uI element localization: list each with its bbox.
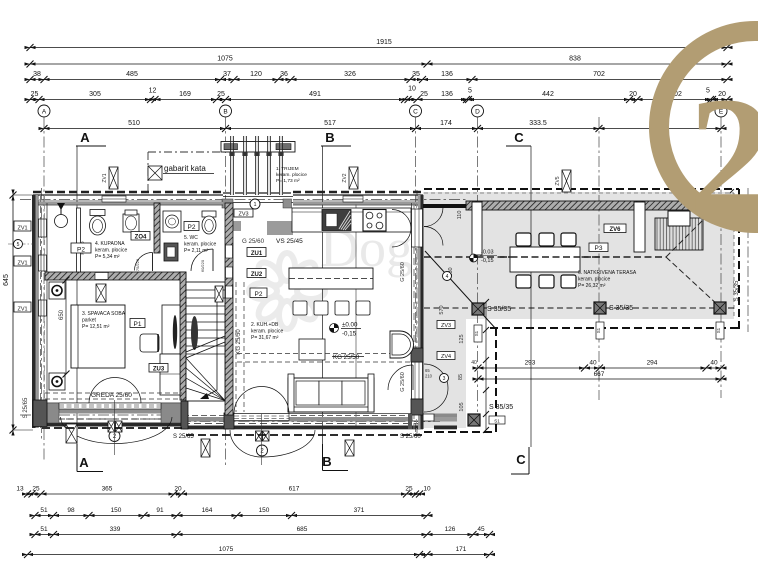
svg-text:G 25/60: G 25/60 [242,238,265,245]
svg-text:parket: parket [82,318,97,324]
svg-text:B: B [322,454,331,469]
svg-text:S 35/35: S 35/35 [734,280,740,301]
svg-text:164: 164 [202,507,213,514]
svg-text:A: A [79,455,89,470]
svg-text:150: 150 [111,507,122,514]
svg-text:P= 1,73 m²: P= 1,73 m² [276,178,300,184]
svg-text:326: 326 [344,71,356,78]
svg-text:110: 110 [457,211,463,220]
svg-text:125: 125 [459,334,465,343]
svg-text:5: 5 [468,88,472,95]
svg-text:293: 293 [525,360,536,367]
svg-text:ZU2: ZU2 [251,272,263,278]
svg-text:4: 4 [446,274,449,280]
svg-text:10: 10 [408,86,416,93]
svg-text:S1: S1 [494,419,500,424]
svg-text:838: 838 [569,56,581,63]
svg-text:305: 305 [89,91,101,98]
svg-text:1075: 1075 [217,56,233,63]
svg-text:60/220: 60/220 [200,259,205,272]
svg-text:171: 171 [456,546,467,553]
svg-text:65: 65 [425,368,430,373]
svg-text:1. TRIJEM: 1. TRIJEM [276,166,299,172]
svg-text:-0.03: -0.03 [481,250,494,256]
svg-text:25: 25 [217,91,225,98]
svg-text:G 25/60: G 25/60 [400,262,406,282]
svg-text:keram. plocice: keram. plocice [276,172,307,178]
svg-text:13: 13 [16,486,24,493]
svg-text:517: 517 [324,120,336,127]
svg-text:P2: P2 [77,246,85,253]
svg-text:491: 491 [309,91,321,98]
svg-text:25: 25 [31,91,39,98]
svg-text:ZV1: ZV1 [102,173,108,182]
svg-text:P= 31,67 m²: P= 31,67 m² [251,335,279,341]
svg-text:gabarit kata: gabarit kata [164,164,206,173]
svg-text:51: 51 [40,507,48,514]
svg-text:126: 126 [445,526,456,533]
svg-text:P= 12,51 m²: P= 12,51 m² [82,324,110,330]
svg-text:S 25/65: S 25/65 [173,434,194,440]
svg-text:645: 645 [3,274,10,286]
svg-text:B: B [325,130,334,145]
svg-text:ZU1: ZU1 [251,251,263,257]
svg-text:25: 25 [32,486,40,493]
svg-text:A: A [42,108,47,115]
svg-text:1: 1 [253,202,256,208]
svg-text:D: D [475,108,480,115]
svg-text:keram. plocice: keram. plocice [184,242,216,248]
svg-text:ZV6: ZV6 [609,227,621,233]
svg-text:C: C [413,108,418,115]
svg-text:485: 485 [126,71,138,78]
svg-text:36: 36 [280,71,288,78]
svg-text:85: 85 [458,374,464,380]
svg-text:P= 26,32 m²: P= 26,32 m² [578,283,606,289]
svg-text:617: 617 [289,486,300,493]
svg-text:ZV2: ZV2 [342,173,348,182]
svg-text:339: 339 [110,526,121,533]
svg-text:±0.00: ±0.00 [342,322,358,329]
svg-text:650: 650 [59,309,65,320]
svg-text:KG 25/50: KG 25/50 [236,329,242,355]
svg-text:3. SPAVACA SOBA: 3. SPAVACA SOBA [82,311,126,317]
svg-text:S 35/35: S 35/35 [487,306,511,313]
svg-text:685: 685 [297,526,308,533]
svg-text:keram. plocice: keram. plocice [578,277,610,283]
svg-text:keram. plocice: keram. plocice [251,329,283,335]
svg-text:37: 37 [223,71,231,78]
svg-text:G 25/60: G 25/60 [400,372,406,392]
svg-text:P= 5,34 m²: P= 5,34 m² [95,254,120,260]
svg-text:ZU3: ZU3 [153,366,165,372]
svg-text:P3: P3 [595,245,603,252]
svg-text:98: 98 [67,507,75,514]
svg-text:10: 10 [423,486,431,493]
svg-text:2. KUH.+DB: 2. KUH.+DB [251,322,279,328]
svg-text:12: 12 [149,88,157,95]
svg-text:667: 667 [594,371,605,378]
svg-text:ZV3: ZV3 [238,211,248,217]
svg-text:45: 45 [477,526,485,533]
svg-text:25: 25 [405,486,413,493]
svg-text:91: 91 [156,507,164,514]
svg-text:ZV1: ZV1 [17,225,27,231]
svg-text:25: 25 [420,91,428,98]
svg-text:1075: 1075 [219,546,234,553]
svg-text:38: 38 [33,71,41,78]
svg-text:105: 105 [459,402,465,411]
svg-text:P1: P1 [134,321,142,328]
svg-text:ZV3: ZV3 [441,323,451,329]
svg-text:-0,15: -0,15 [342,331,357,338]
svg-text:5: 5 [17,242,20,248]
svg-text:S 25/60: S 25/60 [400,434,421,440]
svg-text:3: 3 [443,376,446,382]
svg-text:S1: S1 [596,327,601,333]
svg-text:S1: S1 [716,327,721,333]
svg-text:40: 40 [471,360,477,366]
svg-text:ZV4: ZV4 [441,354,451,360]
svg-text:P2: P2 [255,291,263,298]
svg-text:150: 150 [259,507,270,514]
svg-text:4. KUPAONA: 4. KUPAONA [95,241,125,247]
svg-text:442: 442 [542,91,554,98]
svg-text:VS 25/45: VS 25/45 [276,238,303,245]
svg-text:S 25/65: S 25/65 [23,397,29,418]
svg-text:6. NATKRIVENA TERASA: 6. NATKRIVENA TERASA [578,270,637,276]
svg-text:136: 136 [441,91,453,98]
svg-text:169: 169 [179,91,191,98]
svg-text:20: 20 [629,91,637,98]
svg-text:702: 702 [593,71,605,78]
svg-text:1915: 1915 [376,39,392,46]
svg-text:keram. plocice: keram. plocice [95,248,127,254]
svg-text:P= 2,11 m²: P= 2,11 m² [184,248,209,254]
svg-text:-0,15: -0,15 [481,258,494,264]
svg-text:174: 174 [440,120,452,127]
svg-text:S 35/35: S 35/35 [609,305,633,312]
svg-text:B: B [223,108,227,115]
svg-text:333.5: 333.5 [529,120,547,127]
svg-text:210: 210 [425,374,433,379]
svg-text:570: 570 [439,305,445,314]
svg-text:P2: P2 [188,224,196,231]
svg-text:ZV1: ZV1 [17,306,27,312]
svg-text:294: 294 [647,360,658,367]
svg-text:40: 40 [589,360,597,367]
svg-text:371: 371 [354,507,365,514]
svg-text:75/220: 75/220 [135,258,140,271]
svg-text:510: 510 [128,120,140,127]
svg-text:136: 136 [441,71,453,78]
svg-text:5. WC: 5. WC [184,235,198,241]
svg-text:365: 365 [102,486,113,493]
svg-text:120: 120 [250,71,262,78]
svg-text:ZO4: ZO4 [135,234,147,240]
svg-text:2: 2 [688,62,758,250]
svg-text:20: 20 [174,486,182,493]
svg-text:KG 25/50: KG 25/50 [333,354,360,361]
svg-text:S1: S1 [474,330,479,336]
svg-text:ZV5: ZV5 [555,176,561,185]
svg-text:C: C [516,452,526,467]
svg-text:S 35/35: S 35/35 [489,404,513,411]
svg-text:51: 51 [40,526,48,533]
svg-text:C: C [514,130,524,145]
svg-text:35: 35 [412,71,420,78]
svg-text:A: A [80,130,90,145]
svg-text:GREDA 25/60: GREDA 25/60 [91,392,132,399]
svg-text:ZV1: ZV1 [17,260,27,266]
svg-text:40: 40 [710,360,718,367]
